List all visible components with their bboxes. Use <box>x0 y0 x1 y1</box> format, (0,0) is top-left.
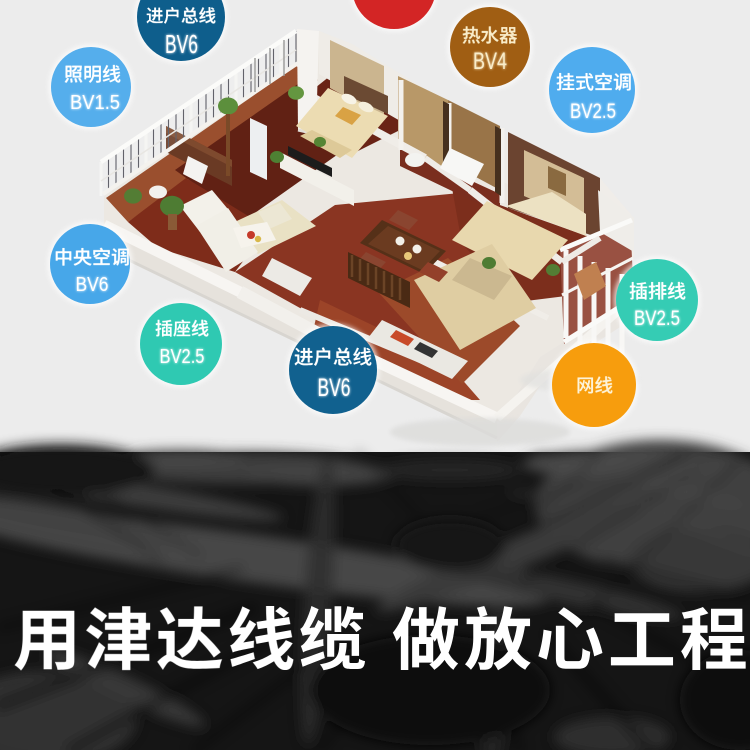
svg-text:BV6: BV6 <box>76 274 109 296</box>
svg-text:BV2.5: BV2.5 <box>160 346 205 368</box>
svg-text:BV6: BV6 <box>165 29 198 59</box>
svg-text:BV2.5: BV2.5 <box>570 100 616 123</box>
svg-text:BV2.5: BV2.5 <box>634 307 680 330</box>
svg-text:BV1.5: BV1.5 <box>70 92 120 114</box>
svg-text:BV4: BV4 <box>473 48 507 75</box>
svg-text:BV6: BV6 <box>318 374 351 402</box>
